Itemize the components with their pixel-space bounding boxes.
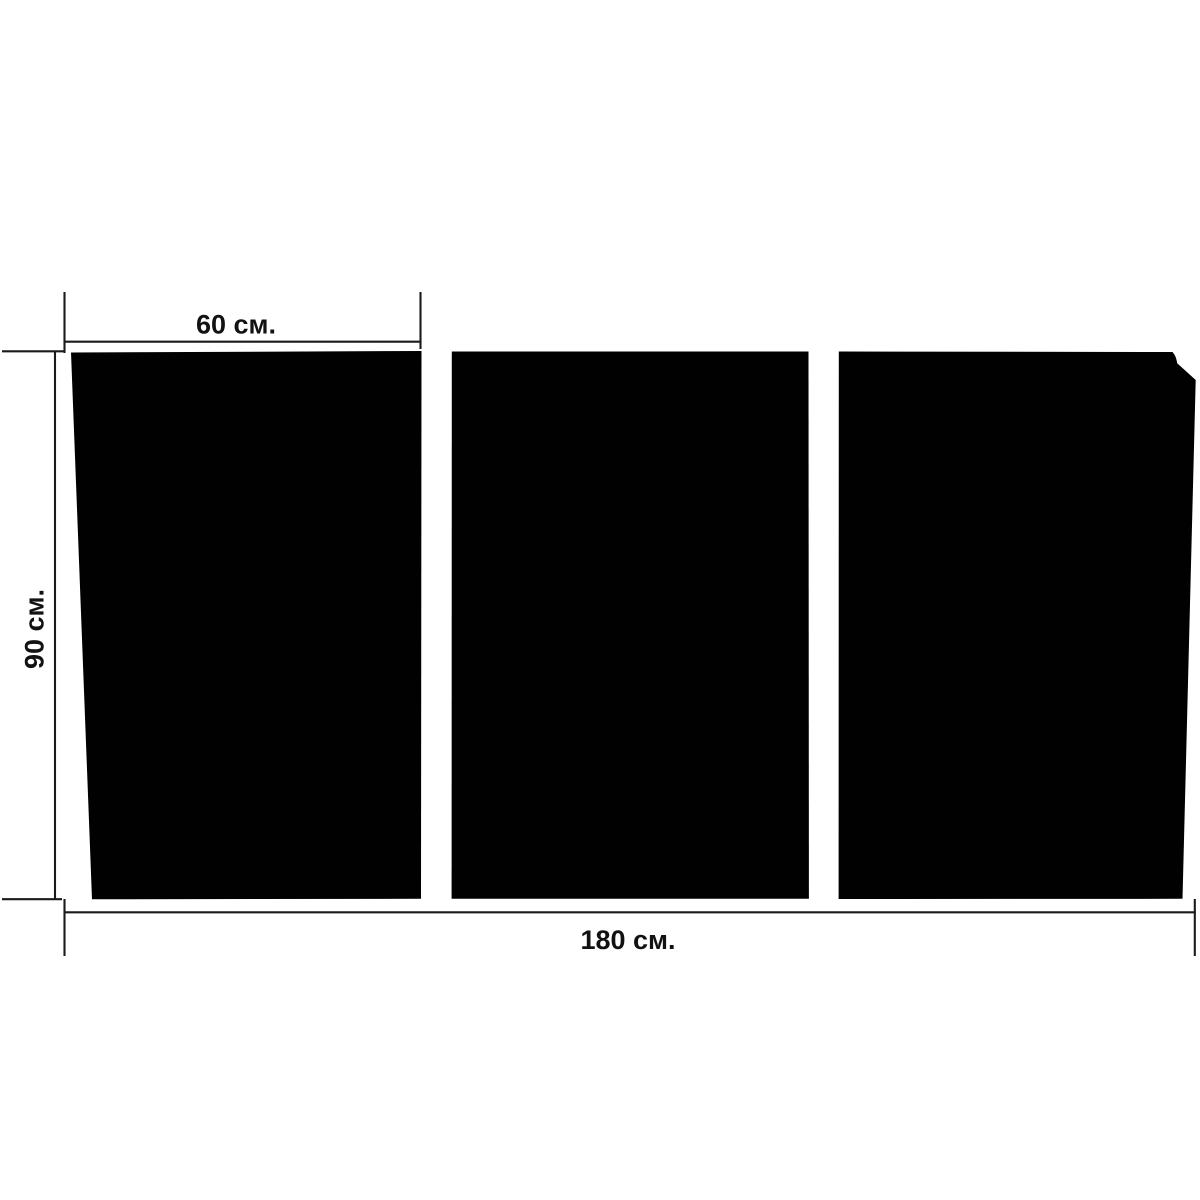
svg-text:90 см.: 90 см. bbox=[20, 589, 50, 669]
svg-text:180 см.: 180 см. bbox=[580, 925, 675, 955]
svg-text:60 см.: 60 см. bbox=[196, 310, 276, 340]
